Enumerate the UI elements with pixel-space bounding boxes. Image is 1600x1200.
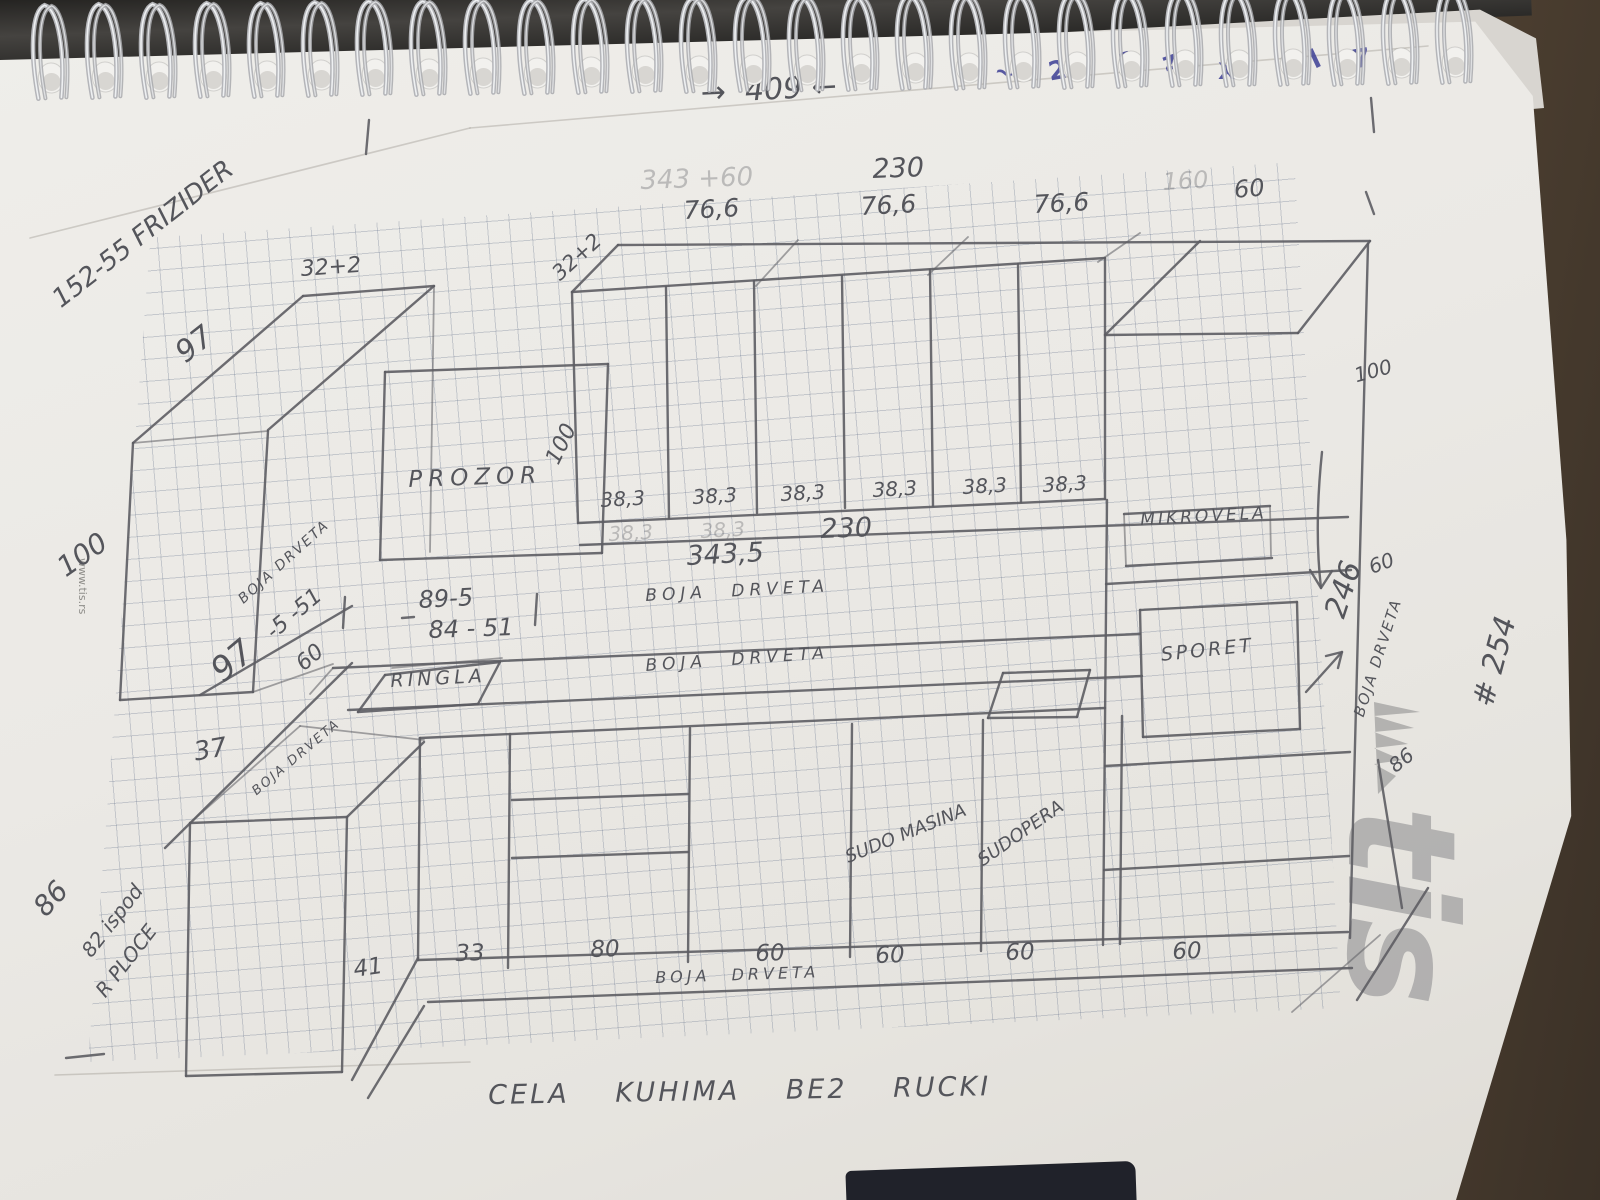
spiral-ring (79, 0, 129, 106)
spiral-ring (727, 0, 777, 99)
spiral-ring (295, 0, 345, 104)
spiral-ring (1267, 0, 1317, 93)
spiral-ring (619, 0, 669, 100)
spiral-ring (1375, 0, 1425, 92)
spiral-ring (187, 0, 237, 105)
spiral-ring (889, 0, 939, 97)
spiral-ring (25, 0, 75, 107)
spiral-ring (1429, 0, 1479, 91)
spiral-ring (511, 0, 561, 102)
spiral-ring (1105, 0, 1155, 95)
spiral-ring (1213, 0, 1263, 94)
spiral-ring (133, 0, 183, 106)
spiral-ring (457, 0, 507, 102)
spiral-ring (835, 0, 885, 98)
spiral-ring (349, 0, 399, 103)
spiral-ring (241, 0, 291, 105)
spiral-ring (403, 0, 453, 103)
spiral-ring (673, 0, 723, 100)
spiral-ring (1321, 0, 1371, 93)
spiral-binding (0, 0, 1600, 1200)
notebook-photo: tis www.tis.rs (0, 0, 1600, 1200)
spiral-ring (1159, 0, 1209, 94)
spiral-ring (565, 0, 615, 101)
spiral-ring (781, 0, 831, 99)
spiral-ring (997, 0, 1047, 96)
spiral-ring (943, 0, 993, 97)
spiral-ring (1051, 0, 1101, 96)
